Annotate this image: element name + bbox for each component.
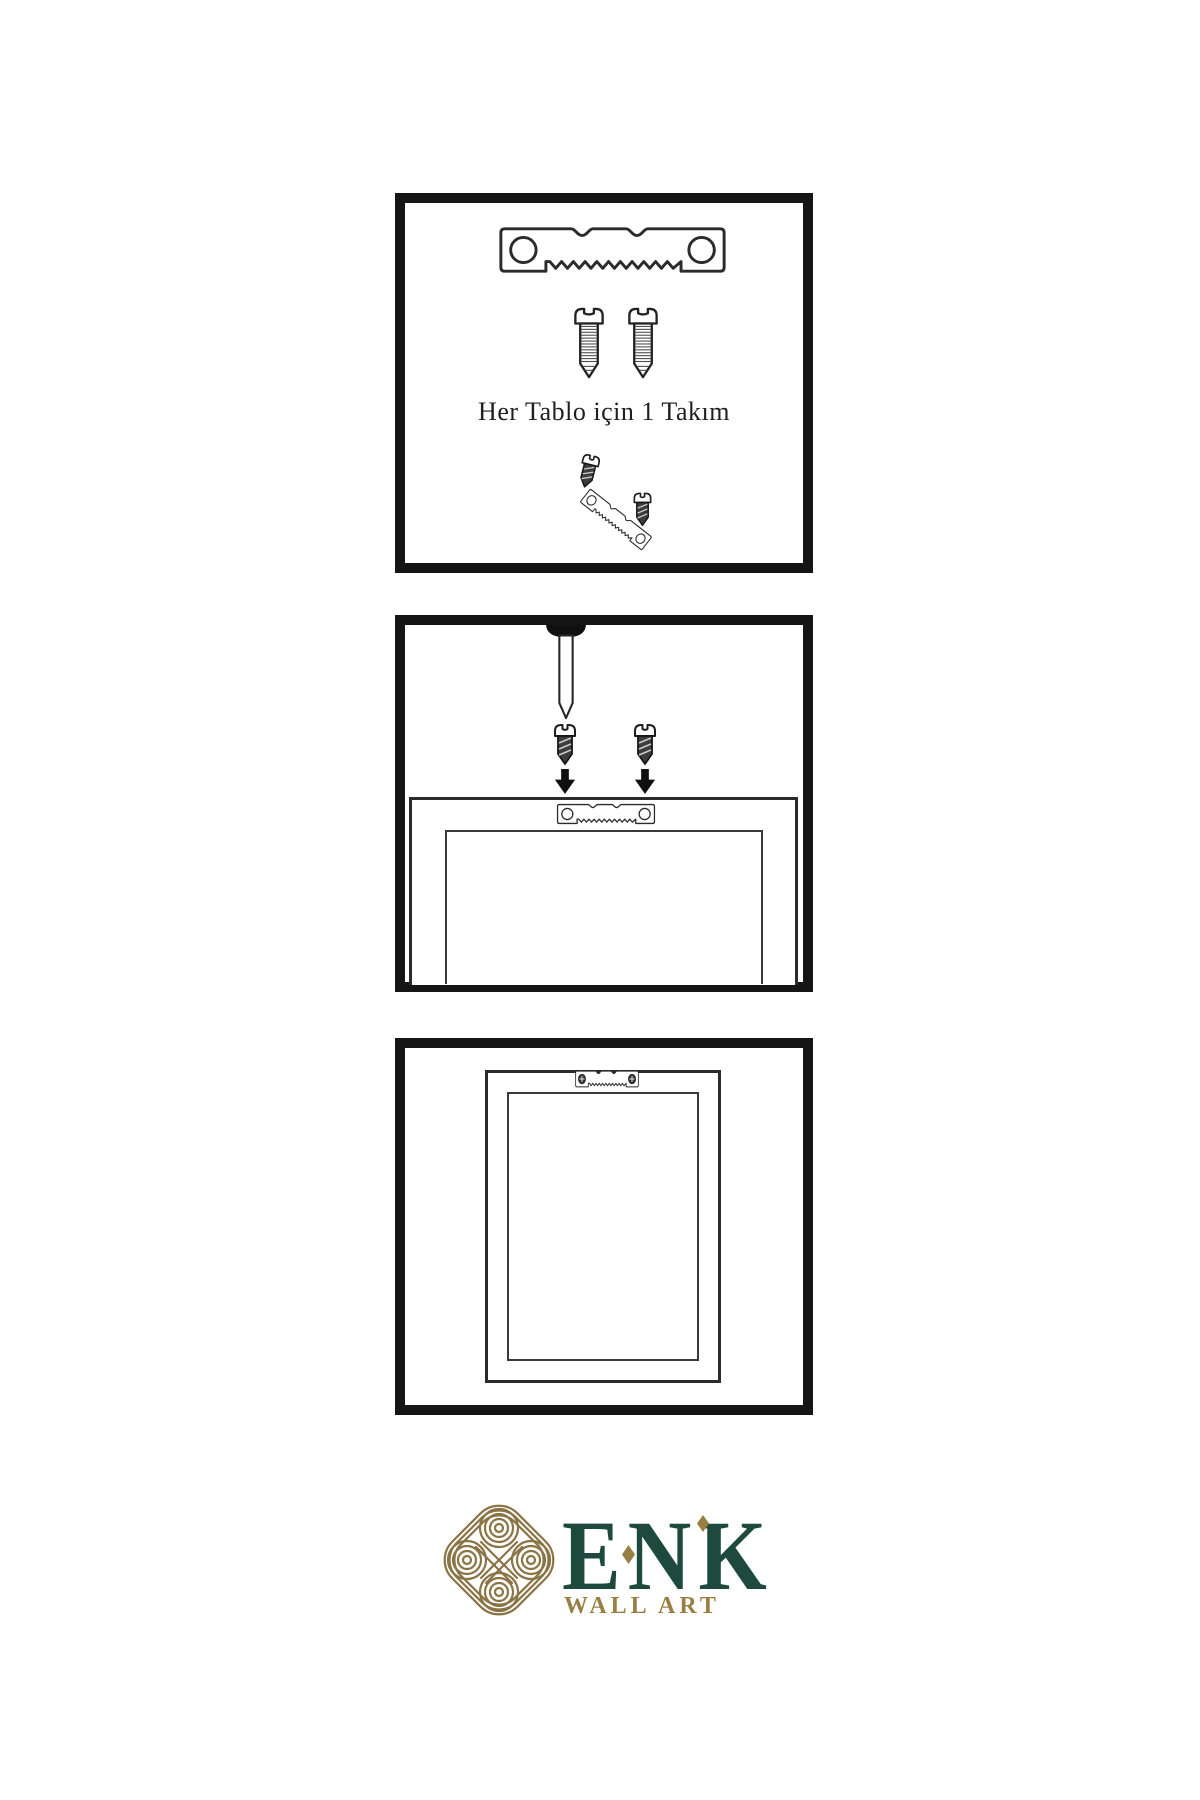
kit-caption: Her Tablo için 1 Takım bbox=[405, 397, 803, 427]
screw-icon bbox=[625, 305, 661, 381]
sawtooth-hanger-icon bbox=[555, 802, 657, 826]
screw-dark-icon bbox=[632, 722, 658, 766]
instruction-sheet: Her Tablo için 1 Takım bbox=[0, 0, 1200, 1800]
screw-dark-icon bbox=[573, 451, 604, 491]
nail-in-wall-icon bbox=[544, 625, 588, 720]
knot-loop-left bbox=[448, 1541, 486, 1579]
knot-icon bbox=[440, 1492, 558, 1628]
frame-back-inner-edge bbox=[507, 1092, 699, 1361]
screw-dark-icon bbox=[552, 722, 578, 766]
knot-loop-right bbox=[512, 1541, 550, 1579]
arrow-down-icon bbox=[634, 769, 656, 794]
screw-icon bbox=[571, 305, 607, 381]
knot-loop-top bbox=[480, 1509, 518, 1547]
brand-tagline: WALL ART bbox=[564, 1594, 720, 1618]
knot-loop-bottom bbox=[480, 1573, 518, 1611]
panel-hanging-kit: Her Tablo için 1 Takım bbox=[395, 193, 813, 573]
sawtooth-hanger-screwed-icon bbox=[574, 1069, 640, 1089]
sawtooth-hanger-icon bbox=[495, 223, 730, 277]
screw-dark-icon bbox=[631, 491, 654, 527]
panel-mounting bbox=[395, 615, 813, 992]
panel-hung bbox=[395, 1038, 813, 1415]
frame-back-inner-edge bbox=[445, 830, 763, 984]
brand-wordmark: ENK bbox=[562, 1506, 774, 1606]
frame-back-icon bbox=[485, 1070, 721, 1383]
arrow-down-icon bbox=[554, 769, 576, 794]
